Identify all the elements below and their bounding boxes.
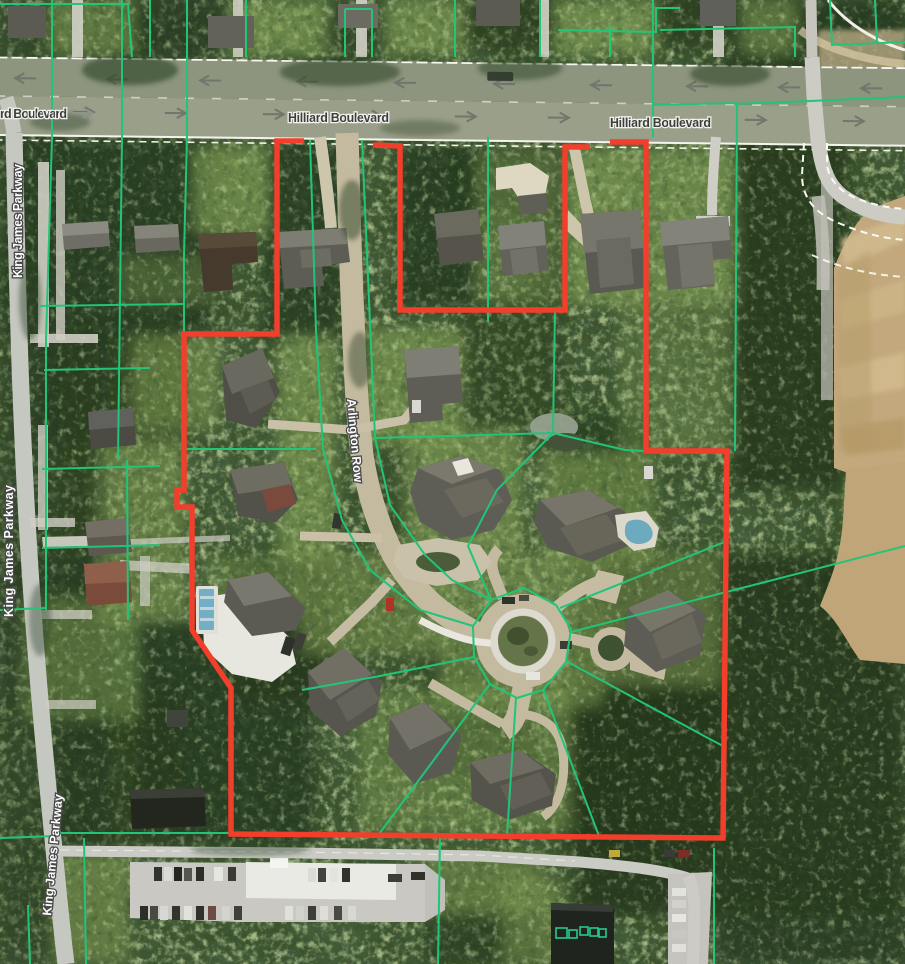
svg-text:Hilliard Boulevard: Hilliard Boulevard xyxy=(610,116,711,130)
svg-text:Hilliard Boulevard: Hilliard Boulevard xyxy=(288,111,389,125)
svg-text:King James Parkway: King James Parkway xyxy=(2,485,16,617)
svg-text:rd Boulevard: rd Boulevard xyxy=(0,107,67,121)
svg-text:King James Parkway: King James Parkway xyxy=(11,164,25,278)
